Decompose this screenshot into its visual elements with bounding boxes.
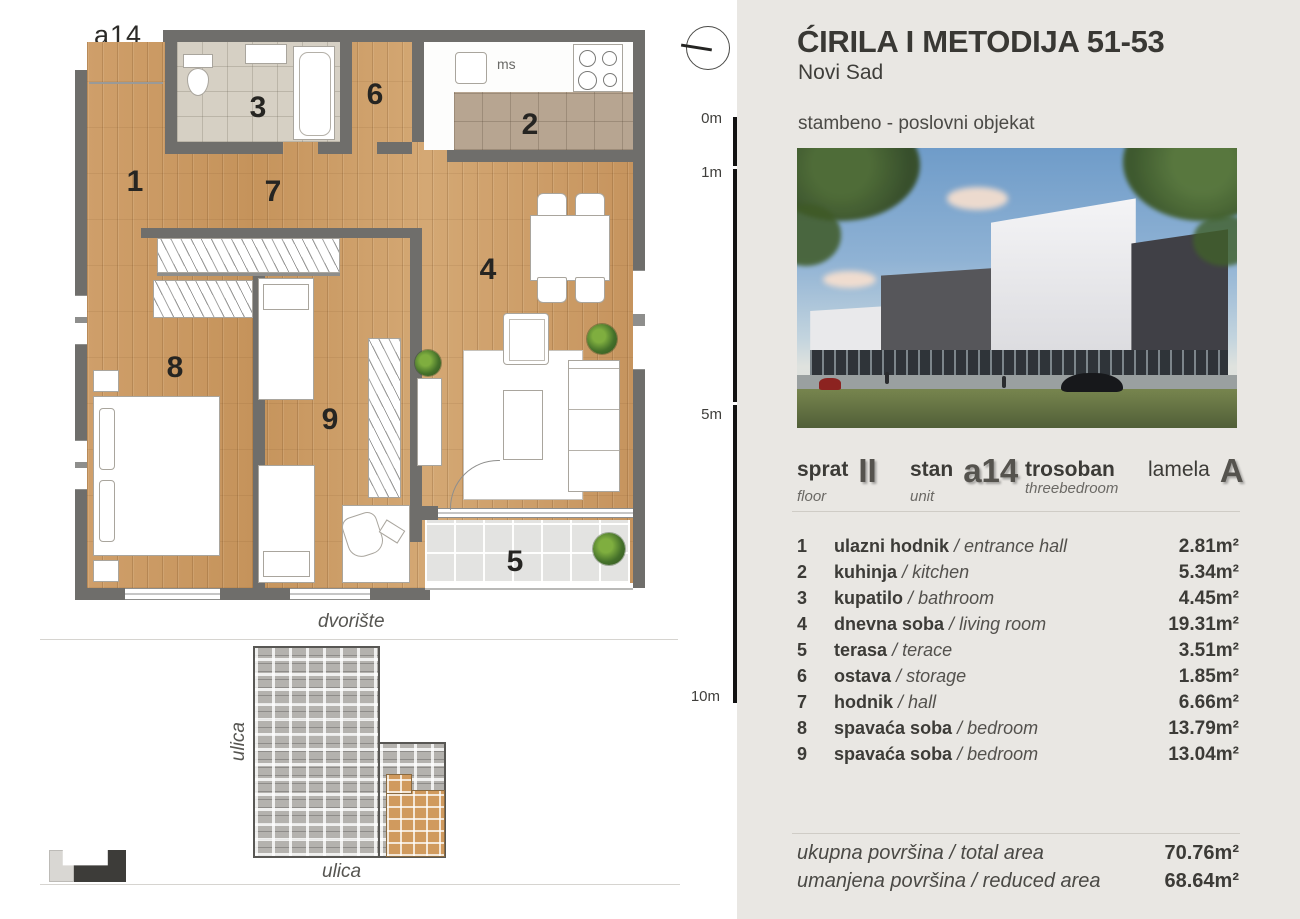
- room-area: 3.51m²: [1179, 640, 1239, 662]
- lawn: [797, 389, 1237, 428]
- room-number: 5: [797, 640, 834, 661]
- room-name-en-text: kitchen: [912, 562, 969, 582]
- window-bedroom8: [125, 588, 220, 600]
- room-list-row: 5 terasa / terace 3.51m²: [797, 640, 1239, 666]
- wall-bottom: [370, 588, 430, 600]
- room-name-en: / storage: [896, 666, 966, 686]
- reduced-area-row: umanjena površina / reduced area 68.64m²: [797, 870, 1239, 893]
- room-name-sr: spavaća soba: [834, 718, 952, 738]
- burner: [578, 71, 597, 90]
- site-building-wing: [253, 646, 380, 858]
- separator: /: [954, 536, 959, 556]
- city-subtitle: Novi Sad: [798, 61, 883, 85]
- yard-label: dvorište: [318, 611, 385, 633]
- car-red: [819, 378, 841, 391]
- dining-chair: [575, 277, 605, 303]
- room-name: spavaća soba / bedroom: [834, 744, 1168, 765]
- unit-value: a14: [963, 452, 1018, 490]
- room-name-en: / entrance hall: [954, 536, 1067, 556]
- total-area-label: ukupna površina / total area: [797, 842, 1165, 865]
- scale-tick-10m: 10m: [680, 688, 720, 705]
- room-area: 13.79m²: [1168, 718, 1239, 740]
- burner: [602, 51, 617, 66]
- room-number: 6: [797, 666, 834, 687]
- wall-storage-right: [412, 42, 424, 142]
- lamela-label: lamela: [1148, 452, 1210, 482]
- room-name-en-text: terace: [902, 640, 952, 660]
- room-name-en: / bedroom: [957, 718, 1038, 738]
- room-name-sr: ostava: [834, 666, 891, 686]
- wall-bathroom-bottom: [318, 142, 352, 154]
- kitchen-walkway: [424, 42, 454, 150]
- unit-info-lamela: lamelaA: [1148, 452, 1244, 490]
- building-photo: [797, 148, 1237, 428]
- divider: [792, 511, 1240, 512]
- room-name-sr: ulazni hodnik: [834, 536, 949, 556]
- room-number: 2: [797, 562, 834, 583]
- building-block-white-main: [991, 198, 1136, 372]
- room-name: ostava / storage: [834, 666, 1179, 687]
- wall-top: [163, 30, 633, 42]
- apartment-floor-plan: ms: [75, 28, 645, 606]
- room-name-sr: dnevna soba: [834, 614, 944, 634]
- burner: [603, 73, 617, 87]
- burner: [579, 50, 596, 67]
- window-bedroom9: [290, 588, 370, 600]
- nightstand: [93, 560, 119, 582]
- floor-value: II: [858, 452, 876, 490]
- scale-tick-1m: 1m: [682, 164, 722, 181]
- unit-info-floor: spratII floor: [797, 452, 877, 505]
- room-name-sr: hodnik: [834, 692, 893, 712]
- stove: [573, 44, 623, 92]
- room-name-en-text: living room: [959, 614, 1046, 634]
- reduced-area-label: umanjena površina / reduced area: [797, 870, 1165, 893]
- hall-wardrobe: [157, 238, 340, 273]
- separator-line: [40, 884, 680, 885]
- room-list-row: 2 kuhinja / kitchen 5.34m²: [797, 562, 1239, 588]
- room-name-en: / living room: [949, 614, 1046, 634]
- wall-bathroom-left: [165, 42, 177, 142]
- bed-pillow: [99, 480, 115, 542]
- room-label-1: 1: [127, 165, 144, 199]
- room-area: 4.45m²: [1179, 588, 1239, 610]
- wall-bottom: [220, 588, 290, 600]
- room-number: 1: [797, 536, 834, 557]
- unit-sublabel: unit: [910, 488, 1018, 505]
- room-label-5: 5: [507, 545, 524, 579]
- room-name-en: / hall: [898, 692, 936, 712]
- divider: [792, 833, 1240, 834]
- unit-info-layout: trosoban threebedroom: [1025, 452, 1118, 497]
- car: [1061, 373, 1123, 391]
- room-name-en-text: bedroom: [967, 718, 1038, 738]
- building-type: stambeno - poslovni objekat: [798, 113, 1035, 135]
- bed-pillow: [263, 284, 309, 310]
- building-glass-groundfloor: [810, 350, 1228, 375]
- bathroom-sink: [245, 44, 287, 64]
- room-area: 5.34m²: [1179, 562, 1239, 584]
- room-area: 1.85m²: [1179, 666, 1239, 688]
- total-area-value: 70.76m²: [1165, 842, 1240, 865]
- room-name-sr: spavaća soba: [834, 744, 952, 764]
- room-name: ulazni hodnik / entrance hall: [834, 536, 1179, 557]
- tree-foliage: [1123, 148, 1237, 221]
- scale-tick-5m: 5m: [682, 406, 722, 423]
- tv-stand: [417, 378, 442, 466]
- kitchen-sink: [455, 52, 487, 84]
- wall-bottom: [75, 588, 125, 600]
- room-name: dnevna soba / living room: [834, 614, 1168, 635]
- room-label-6: 6: [367, 78, 384, 112]
- total-area-row: ukupna površina / total area 70.76m²: [797, 842, 1239, 865]
- unit-info-unit: stana14 unit: [910, 452, 1018, 505]
- developer-logo-icon: [74, 850, 126, 882]
- kitchen-note: ms: [497, 56, 516, 72]
- separator: /: [902, 562, 907, 582]
- room-name: hodnik / hall: [834, 692, 1179, 713]
- person: [885, 372, 889, 384]
- separator: /: [908, 588, 913, 608]
- room-list-row: 3 kupatilo / bathroom 4.45m²: [797, 588, 1239, 614]
- page-title: ĆIRILA I METODIJA 51-53: [797, 24, 1164, 60]
- wall-bathroom-bottom: [165, 142, 283, 154]
- bedroom9-wardrobe: [368, 338, 401, 498]
- room-label-9: 9: [322, 403, 339, 437]
- room-name-en-text: entrance hall: [964, 536, 1067, 556]
- armchair-seat: [509, 319, 545, 361]
- room-name: kupatilo / bathroom: [834, 588, 1179, 609]
- window-living-right: [633, 270, 645, 370]
- terrace-plant: [593, 533, 625, 565]
- bed-pillow: [263, 551, 310, 577]
- room-label-8: 8: [167, 351, 184, 385]
- room-list-row: 4 dnevna soba / living room 19.31m²: [797, 614, 1239, 640]
- wall-hall: [141, 228, 422, 238]
- room-label-2: 2: [522, 108, 539, 142]
- dining-table: [530, 215, 610, 281]
- floor-sublabel: floor: [797, 488, 877, 505]
- room-name-sr: kupatilo: [834, 588, 903, 608]
- room-name-sr: kuhinja: [834, 562, 897, 582]
- room-name-en: / terace: [892, 640, 952, 660]
- nightstand: [93, 370, 119, 392]
- window-left-1: [75, 295, 87, 345]
- separator: /: [957, 718, 962, 738]
- room-name-en: / kitchen: [902, 562, 969, 582]
- plant: [587, 324, 617, 354]
- street-label-left: ulica: [228, 722, 250, 761]
- compass-hand: [681, 44, 712, 51]
- room-area: 2.81m²: [1179, 536, 1239, 558]
- room-list-row: 7 hodnik / hall 6.66m²: [797, 692, 1239, 718]
- site-highlighted-unit-a14: [386, 790, 445, 857]
- building-site-plan: [253, 646, 449, 860]
- room-name-en-text: bedroom: [967, 744, 1038, 764]
- floorplan-brochure: a14: [0, 0, 1300, 919]
- room-name-en-text: hall: [908, 692, 936, 712]
- cloud: [823, 271, 876, 288]
- terrace-railing: [425, 583, 633, 590]
- room-name-sr: terasa: [834, 640, 887, 660]
- cloud: [947, 187, 1009, 209]
- room-number: 4: [797, 614, 834, 635]
- window-left-2: [75, 440, 87, 490]
- plant: [415, 350, 441, 376]
- kitchen-floor: [454, 92, 633, 150]
- room-area: 13.04m²: [1168, 744, 1239, 766]
- bed-pillow: [99, 408, 115, 470]
- room-list-row: 9 spavaća soba / bedroom 13.04m²: [797, 744, 1239, 770]
- toilet-tank: [183, 54, 213, 68]
- room-list-row: 1 ulazni hodnik / entrance hall 2.81m²: [797, 536, 1239, 562]
- info-panel: ĆIRILA I METODIJA 51-53 Novi Sad stamben…: [737, 0, 1300, 919]
- room-name-en: / bathroom: [908, 588, 994, 608]
- wall-kitchen-bottom: [447, 150, 633, 162]
- coffee-table: [503, 390, 543, 460]
- separator: /: [898, 692, 903, 712]
- reduced-area-value: 68.64m²: [1165, 870, 1240, 893]
- room-label-3: 3: [250, 91, 267, 125]
- separator: /: [957, 744, 962, 764]
- sofa: [568, 360, 620, 492]
- room-number: 9: [797, 744, 834, 765]
- wall-storage-bottom: [377, 142, 412, 154]
- floor-label: sprat: [797, 452, 848, 482]
- room-number: 7: [797, 692, 834, 713]
- bathtub-inner: [299, 52, 331, 136]
- room-area: 19.31m²: [1168, 614, 1239, 636]
- wall-terrace: [410, 506, 438, 520]
- room-list-row: 8 spavaća soba / bedroom 13.79m²: [797, 718, 1239, 744]
- layout-label: trosoban: [1025, 452, 1115, 482]
- separator: /: [896, 666, 901, 686]
- separator: /: [892, 640, 897, 660]
- bedroom8-wardrobe: [153, 280, 253, 318]
- site-highlighted-unit-a14: [386, 774, 412, 794]
- room-number: 3: [797, 588, 834, 609]
- separator: /: [949, 614, 954, 634]
- street-label-bottom: ulica: [322, 861, 361, 883]
- wall-bathroom-right: [340, 42, 352, 142]
- unit-label: stan: [910, 452, 953, 482]
- room-number: 8: [797, 718, 834, 739]
- separator-line: [40, 639, 678, 640]
- person: [1002, 376, 1006, 388]
- dining-chair: [537, 277, 567, 303]
- room-name: terasa / terace: [834, 640, 1179, 661]
- lamela-value: A: [1220, 452, 1244, 490]
- room-area: 6.66m²: [1179, 692, 1239, 714]
- room-name: kuhinja / kitchen: [834, 562, 1179, 583]
- hall-wardrobe-edge: [157, 273, 340, 276]
- room-name: spavaća soba / bedroom: [834, 718, 1168, 739]
- room-label-4: 4: [480, 253, 497, 287]
- layout-sublabel: threebedroom: [1025, 480, 1118, 497]
- room-name-en-text: storage: [906, 666, 966, 686]
- room-name-en: / bedroom: [957, 744, 1038, 764]
- developer-logo-icon: [49, 850, 74, 882]
- scale-tick-0m: 0m: [682, 110, 722, 127]
- entry-wall-stub: [75, 70, 87, 86]
- entry-door: [89, 82, 163, 84]
- room-list-row: 6 ostava / storage 1.85m²: [797, 666, 1239, 692]
- north-arrow-icon: [686, 26, 730, 70]
- room-label-7: 7: [265, 175, 282, 209]
- room-name-en-text: bathroom: [918, 588, 994, 608]
